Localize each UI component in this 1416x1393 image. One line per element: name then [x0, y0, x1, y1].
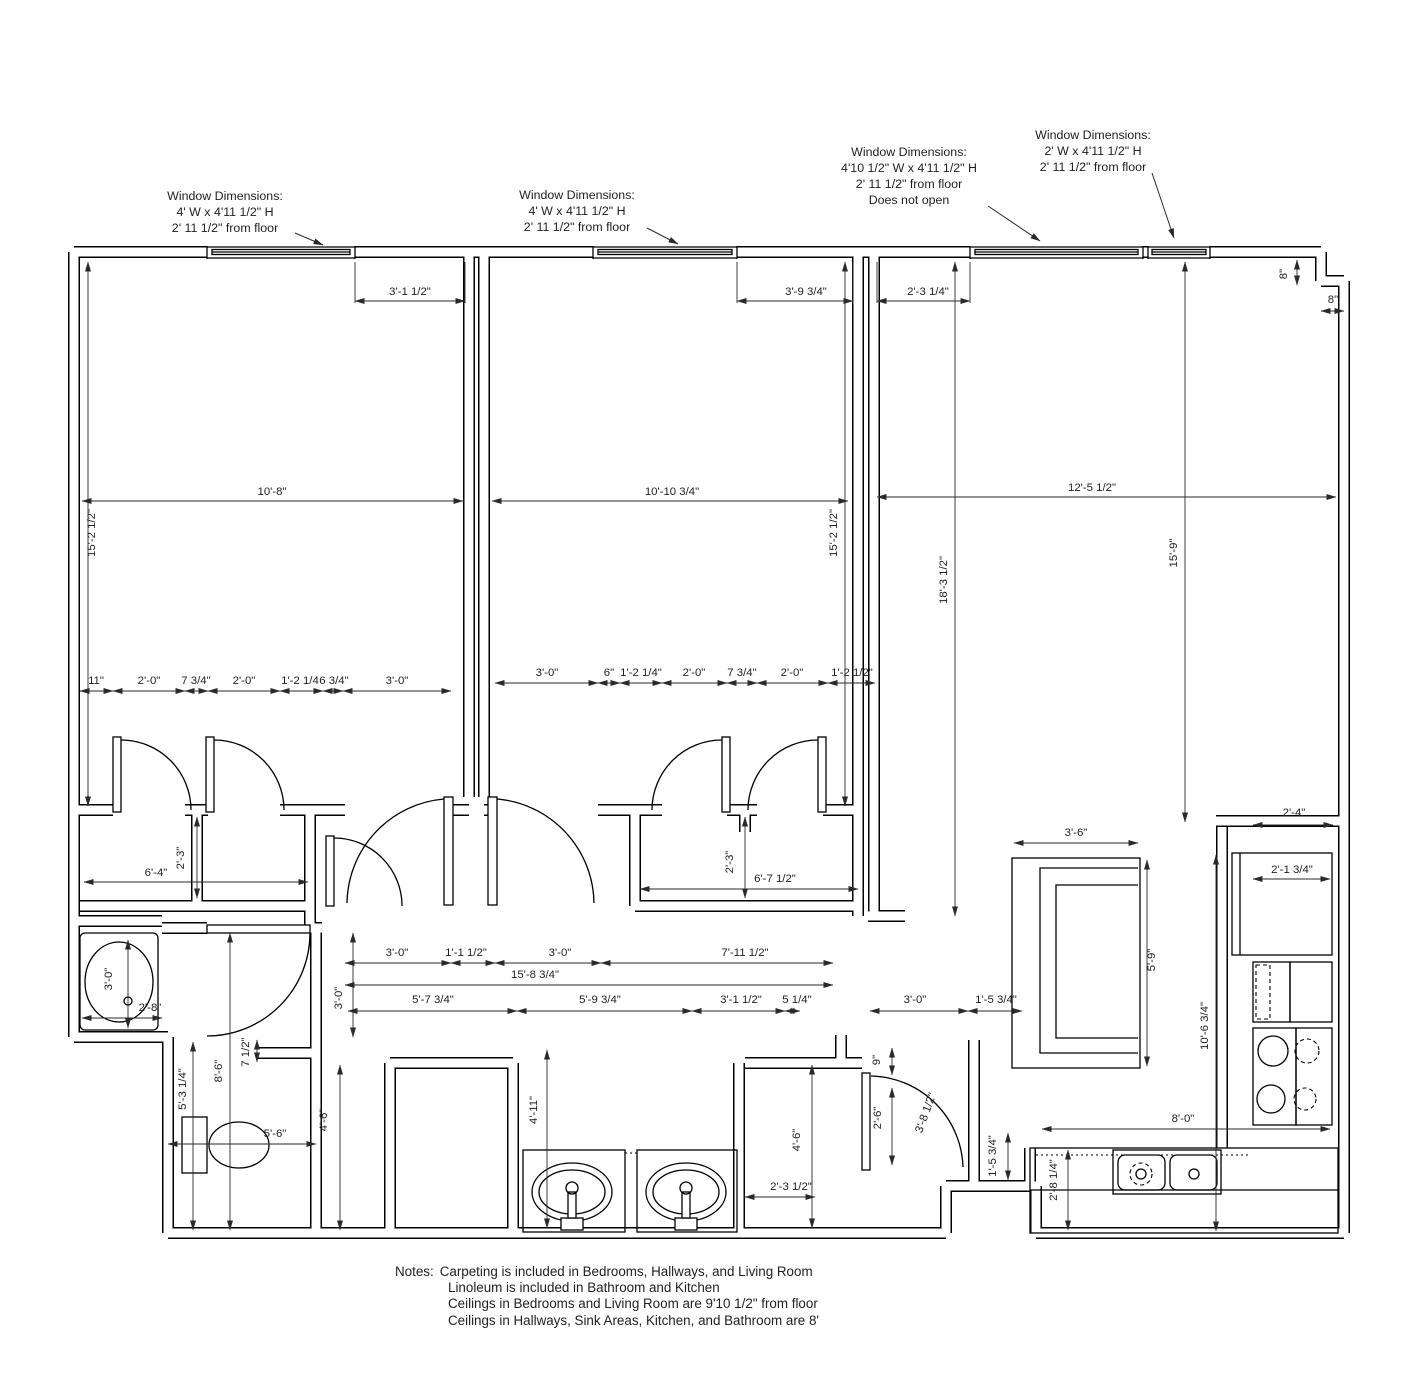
- bedroom2-entry-door: [488, 797, 594, 905]
- bedroom2-closet-door-1: [652, 737, 730, 812]
- dimension-label: 2'-3 1/4": [907, 286, 949, 298]
- dimension-label: 3'-0": [333, 987, 345, 1010]
- notes-label: Notes:: [395, 1264, 434, 1279]
- dimension-label: 3'-8 1/2": [913, 1091, 939, 1134]
- dimension-label: 3'-0": [386, 675, 409, 687]
- dimension-label: 3'-9 3/4": [785, 286, 827, 298]
- floor-plan-page: 3'-1 1/2"3'-9 3/4"2'-3 1/4"8"8"10'-8"10'…: [0, 0, 1416, 1393]
- bedroom1-window-note: Window Dimensions:4' W x 4'11 1/2" H2' 1…: [167, 189, 283, 235]
- dimension-lines: [80, 260, 1344, 1231]
- bathtub: [80, 933, 158, 1030]
- dimension-label: 18'-3 1/2": [938, 556, 950, 604]
- dimension-label: 10'-10 3/4": [645, 486, 699, 498]
- dimension-label: 5'-6": [264, 1128, 287, 1140]
- living-small-window: [1148, 245, 1210, 259]
- dimension-label: 8'-0": [1172, 1113, 1195, 1125]
- dimension-label: 10'-8": [257, 486, 286, 498]
- bedroom2-window-note: Window Dimensions:4' W x 4'11 1/2" H2' 1…: [519, 188, 635, 234]
- dimension-label: 15'-9": [1168, 538, 1180, 567]
- dimension-label: 3'-1 1/2": [389, 286, 431, 298]
- notes-line-1: Notes:Carpeting is included in Bedrooms,…: [395, 1264, 819, 1280]
- dimension-label: 15'-2 1/2": [828, 509, 840, 557]
- walls: [74, 252, 1344, 1233]
- dimension-label: 4'-6": [318, 1109, 330, 1132]
- dimension-label: 1'-1 1/2": [445, 947, 487, 959]
- dimension-label: 5'-7 3/4": [412, 994, 454, 1006]
- wall-lines-inner: [74, 252, 1344, 1233]
- dimension-label: 2'-4": [1283, 807, 1306, 819]
- dimension-label: 6": [604, 667, 614, 679]
- dimension-label: 9": [871, 1055, 883, 1065]
- dimension-label: 2'-8": [139, 1002, 162, 1014]
- dimension-label: 1'-5 3/4": [975, 994, 1017, 1006]
- notes-line-2: Linoleum is included in Bathroom and Kit…: [395, 1280, 819, 1296]
- notes-text-1: Carpeting is included in Bedrooms, Hallw…: [440, 1264, 813, 1279]
- living-large-window-note: Window Dimensions:4'10 1/2" W x 4'11 1/2…: [841, 145, 977, 207]
- dimension-label: 6'-4": [145, 867, 168, 879]
- dimension-label: 12'-5 1/2": [1068, 482, 1116, 494]
- dimension-label: 8": [1278, 269, 1290, 279]
- dimension-label: 3'-0": [904, 994, 927, 1006]
- dimension-label: 2'-8 1/4": [1048, 1159, 1060, 1201]
- dimension-label: 3'-6": [1065, 827, 1088, 839]
- dimension-label: 3'-0": [536, 667, 559, 679]
- dimension-label: 11": [88, 675, 104, 687]
- kitchen-counter-upper: [1253, 962, 1332, 1022]
- stove: [1253, 1028, 1332, 1125]
- dimension-label: 7 1/2": [240, 1037, 252, 1066]
- living-large-window-note-leader: [988, 206, 1040, 241]
- dimension-label: 15'-8 3/4": [511, 969, 559, 981]
- dimension-label: 2'-0": [781, 667, 804, 679]
- floor-plan-drawing: 3'-1 1/2"3'-9 3/4"2'-3 1/4"8"8"10'-8"10'…: [0, 0, 1416, 1393]
- stair-alcove: [1012, 858, 1140, 1068]
- bedroom2-window-note-leader: [647, 228, 678, 244]
- dimension-label: 1'-2 1/4": [620, 667, 662, 679]
- notes-line-3: Ceilings in Bedrooms and Living Room are…: [395, 1296, 819, 1312]
- dimension-label: 10'-6 3/4": [1199, 1002, 1211, 1050]
- dimension-label: 1'-2 1/4: [281, 675, 319, 687]
- notes-block: Notes:Carpeting is included in Bedrooms,…: [395, 1264, 819, 1329]
- dimension-labels: 3'-1 1/2"3'-9 3/4"2'-3 1/4"8"8"10'-8"10'…: [86, 269, 1338, 1201]
- bedroom2-closet-door-2: [748, 737, 826, 812]
- bedroom1-closet-door-2: [206, 737, 284, 812]
- dimension-label: 5'-9": [1146, 949, 1158, 972]
- dimension-label: 2'-3": [724, 851, 736, 874]
- dimension-label: 5 1/4": [782, 994, 811, 1006]
- dimension-label: 1'-5 3/4": [987, 1135, 999, 1177]
- dimension-label: 5'-3 1/4": [177, 1068, 189, 1110]
- dimension-label: 6 3/4": [319, 675, 348, 687]
- dimension-label: 3'-0": [103, 968, 115, 991]
- kitchen-sink-basin-2: [1170, 1155, 1217, 1190]
- dimension-label: 2'-0": [138, 675, 161, 687]
- wall-lines: [74, 252, 1344, 1233]
- bedroom1-closet-door-1: [113, 737, 191, 812]
- window-annotations: Window Dimensions:4' W x 4'11 1/2" H2' 1…: [167, 128, 1174, 245]
- dimension-label: 15'-2 1/2": [86, 509, 98, 557]
- dimension-label: 2'-3": [175, 847, 187, 870]
- toilet: [182, 1117, 269, 1173]
- dimension-label: 2'-1 3/4": [1271, 864, 1313, 876]
- bedroom2-window: [593, 245, 737, 259]
- dimension-label: 2'-6": [872, 1107, 884, 1130]
- dimension-label: 3'-0": [386, 947, 409, 959]
- living-small-window-note: Window Dimensions:2' W x 4'11 1/2" H2' 1…: [1035, 128, 1151, 174]
- dimension-label: 6'-7 1/2": [754, 873, 796, 885]
- dimension-label: 4'-11": [528, 1096, 540, 1124]
- dimension-label: 2'-0": [233, 675, 256, 687]
- dimension-label: 2'-0": [683, 667, 706, 679]
- dimension-label: 8'-6": [213, 1060, 225, 1083]
- dimension-label: 1'-2 1/2": [831, 667, 873, 679]
- living-large-window: [970, 245, 1143, 259]
- dimension-label: 7'-11 1/2": [721, 947, 768, 959]
- dimension-label: 3'-0": [549, 947, 572, 959]
- living-small-window-note-leader: [1152, 173, 1174, 238]
- bedroom1-window: [207, 245, 355, 259]
- dimension-label: 8": [1328, 294, 1338, 306]
- dimension-label: 5'-9 3/4": [579, 994, 621, 1006]
- dimension-label: 7 3/4": [727, 667, 756, 679]
- vanity-sink-2: [637, 1150, 737, 1232]
- bedroom1-window-note-leader: [295, 233, 323, 245]
- vanity-sink-1: [523, 1150, 625, 1232]
- kitchen-counter-lower: [1030, 1148, 1338, 1233]
- dimension-label: 2'-3 1/2": [770, 1181, 812, 1193]
- dimension-label: 7 3/4": [181, 675, 210, 687]
- bathroom-door: [207, 925, 310, 1036]
- dimension-label: 3'-1 1/2": [720, 994, 762, 1006]
- dimension-label: 4'-6": [791, 1129, 803, 1152]
- notes-line-4: Ceilings in Hallways, Sink Areas, Kitche…: [395, 1313, 819, 1329]
